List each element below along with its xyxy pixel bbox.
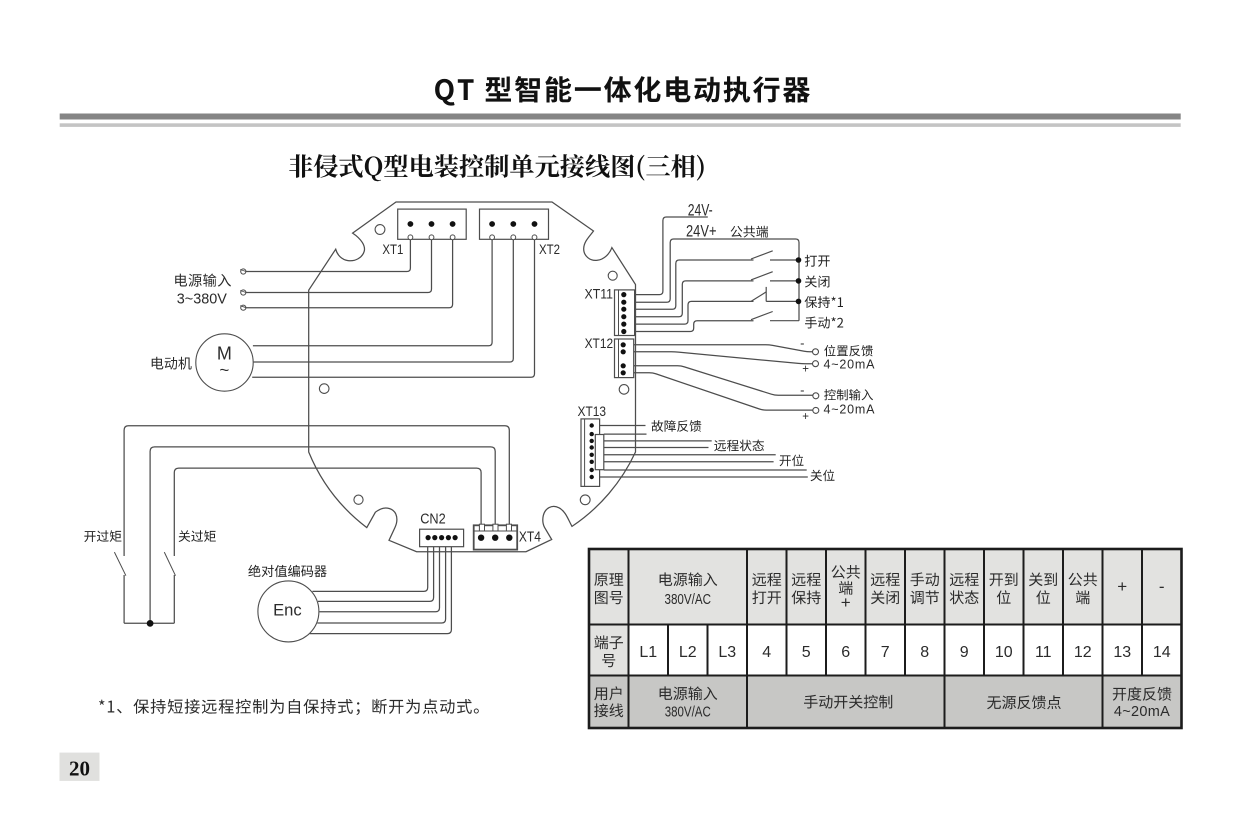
svg-text:CN2: CN2 (420, 512, 446, 528)
svg-text:+: + (841, 593, 851, 612)
svg-text:L1: L1 (639, 644, 657, 661)
svg-text:-: - (800, 336, 804, 351)
svg-text:L2: L2 (679, 644, 697, 661)
svg-text:24V-: 24V- (688, 201, 713, 219)
svg-text:12: 12 (1074, 644, 1092, 661)
svg-text:24V+: 24V+ (686, 223, 717, 241)
svg-text:380V/AC: 380V/AC (665, 592, 712, 608)
svg-text:XT13: XT13 (578, 403, 607, 419)
svg-text:4: 4 (762, 644, 771, 661)
svg-text:8: 8 (920, 644, 929, 661)
svg-text:XT12: XT12 (585, 335, 614, 351)
svg-text:~: ~ (219, 361, 229, 380)
svg-text:14: 14 (1153, 644, 1171, 661)
svg-text:XT2: XT2 (539, 241, 560, 257)
svg-text:+: + (802, 364, 809, 376)
svg-text:6: 6 (841, 644, 850, 661)
svg-text:5: 5 (802, 644, 811, 661)
svg-text:L3: L3 (718, 644, 736, 661)
svg-text:7: 7 (881, 644, 890, 661)
svg-text:+: + (802, 411, 809, 423)
svg-text:11: 11 (1035, 644, 1052, 661)
svg-text:380V/AC: 380V/AC (665, 704, 711, 720)
svg-text:10: 10 (995, 644, 1013, 661)
svg-text:XT11: XT11 (585, 286, 614, 302)
svg-text:4~20mA: 4~20mA (824, 403, 876, 417)
svg-text:20: 20 (69, 757, 90, 781)
svg-text:4~20mA: 4~20mA (1114, 704, 1170, 720)
svg-text:Enc: Enc (273, 601, 302, 620)
svg-text:XT1: XT1 (382, 241, 403, 257)
svg-text:13: 13 (1113, 644, 1131, 661)
svg-text:3~380V: 3~380V (177, 292, 227, 308)
svg-text:-: - (800, 382, 804, 397)
svg-text:XT4: XT4 (519, 530, 541, 546)
svg-text:+: + (1117, 577, 1127, 596)
svg-text:9: 9 (960, 644, 969, 661)
svg-text:-: - (1159, 577, 1165, 596)
svg-text:4~20mA: 4~20mA (824, 358, 876, 372)
